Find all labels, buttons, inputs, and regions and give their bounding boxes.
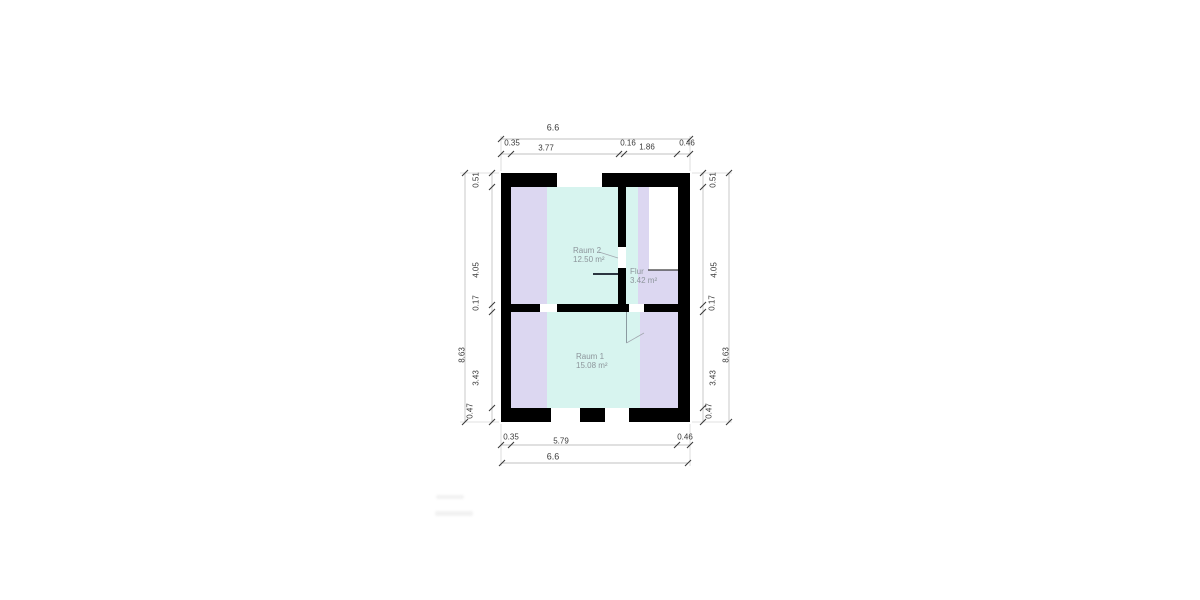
dim-top-seg-1-86: 1.86 [639, 143, 655, 152]
dimension-linework [0, 0, 1200, 600]
dim-bottom-seg-0-46: 0.46 [677, 433, 693, 442]
room-area: 12.50 m² [573, 256, 605, 265]
dim-right-seg-0-51: 0.51 [709, 172, 718, 188]
dim-top-seg-0-16: 0.16 [620, 139, 636, 148]
dim-top-seg-3-77: 3.77 [538, 144, 554, 153]
watermark [435, 511, 473, 516]
dim-left-seg-0-51: 0.51 [472, 172, 481, 188]
dim-bottom-seg-5-79: 5.79 [553, 437, 569, 446]
dim-right-seg-0-17: 0.17 [708, 295, 717, 311]
room-label-raum1: Raum 1 15.08 m² [576, 353, 608, 370]
room-area: 15.08 m² [576, 362, 608, 371]
room-area: 3.42 m² [630, 277, 657, 286]
dim-left-seg-0-47: 0.47 [466, 403, 475, 419]
room-label-flur: Flur 3.42 m² [630, 268, 657, 285]
dimension-ticks [462, 136, 732, 466]
extension-lines [460, 136, 732, 466]
dim-left-seg-3-43: 3.43 [472, 370, 481, 386]
dim-bottom-seg-0-35: 0.35 [503, 433, 519, 442]
dim-right-seg-3-43: 3.43 [709, 370, 718, 386]
dim-top-seg-0-46: 0.46 [679, 139, 695, 148]
room-label-raum2: Raum 2 12.50 m² [573, 247, 605, 264]
dim-right-overall: 8.63 [722, 347, 731, 363]
dim-bottom-overall: 6.6 [547, 453, 560, 462]
dimension-lines [465, 139, 729, 463]
dim-top-overall: 6.6 [547, 124, 560, 133]
dim-left-overall: 8.63 [458, 347, 467, 363]
dim-right-seg-4-05: 4.05 [710, 262, 719, 278]
dim-left-seg-0-17: 0.17 [472, 295, 481, 311]
watermark [436, 495, 464, 499]
dim-top-seg-0-35: 0.35 [504, 139, 520, 148]
dim-left-seg-4-05: 4.05 [472, 262, 481, 278]
floor-plan-canvas: Raum 2 12.50 m² Flur 3.42 m² Raum 1 15.0… [0, 0, 1200, 600]
dim-right-seg-0-47: 0.47 [705, 403, 714, 419]
door-swing-lines [593, 252, 644, 343]
